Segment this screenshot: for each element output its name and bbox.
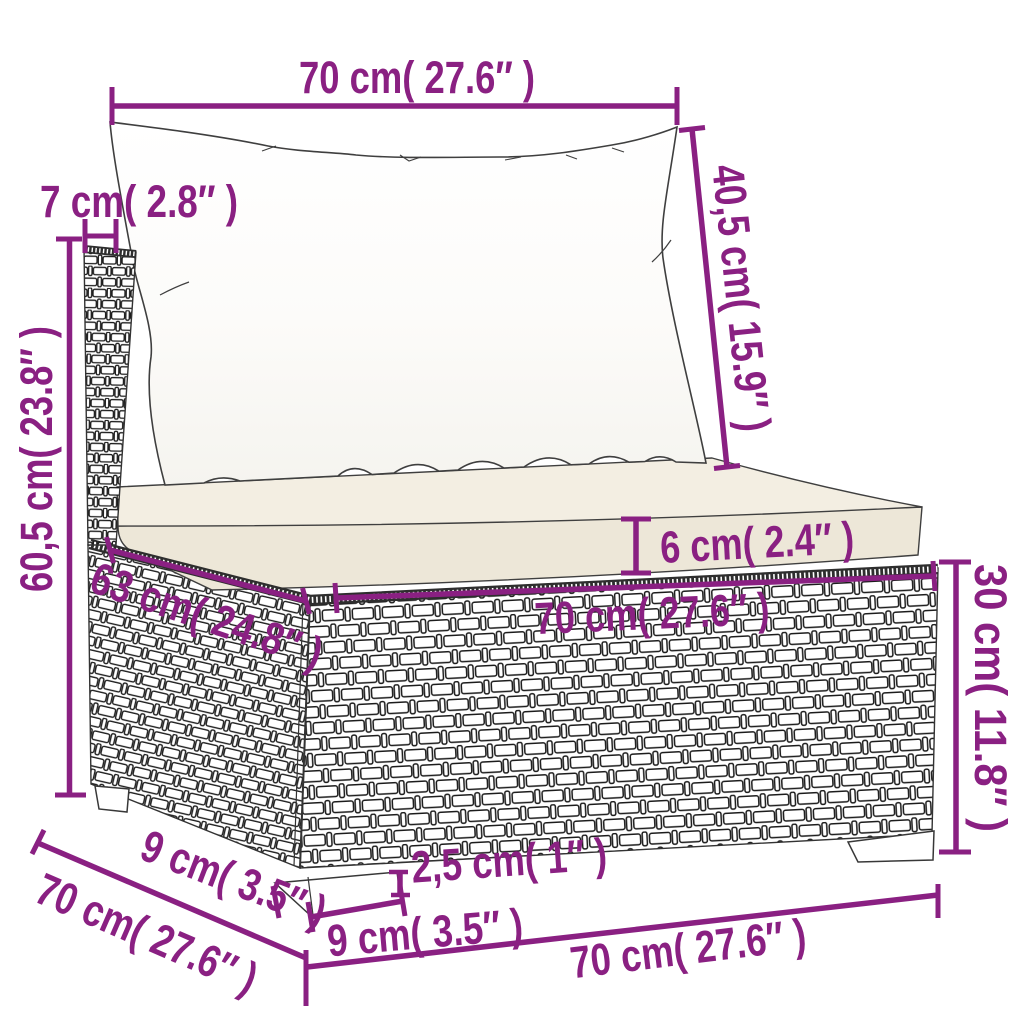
svg-text:6 cm( 2.4″ ): 6 cm( 2.4″ ) bbox=[659, 512, 855, 573]
svg-text:60,5 cm( 23.8″ ): 60,5 cm( 23.8″ ) bbox=[11, 326, 62, 592]
svg-text:70 cm( 27.6″ ): 70 cm( 27.6″ ) bbox=[534, 583, 771, 644]
svg-text:30 cm( 11.8″ ): 30 cm( 11.8″ ) bbox=[965, 564, 1016, 832]
svg-text:7 cm( 2.8″ ): 7 cm( 2.8″ ) bbox=[40, 176, 238, 227]
svg-text:70 cm( 27.6″ ): 70 cm( 27.6″ ) bbox=[299, 52, 535, 103]
